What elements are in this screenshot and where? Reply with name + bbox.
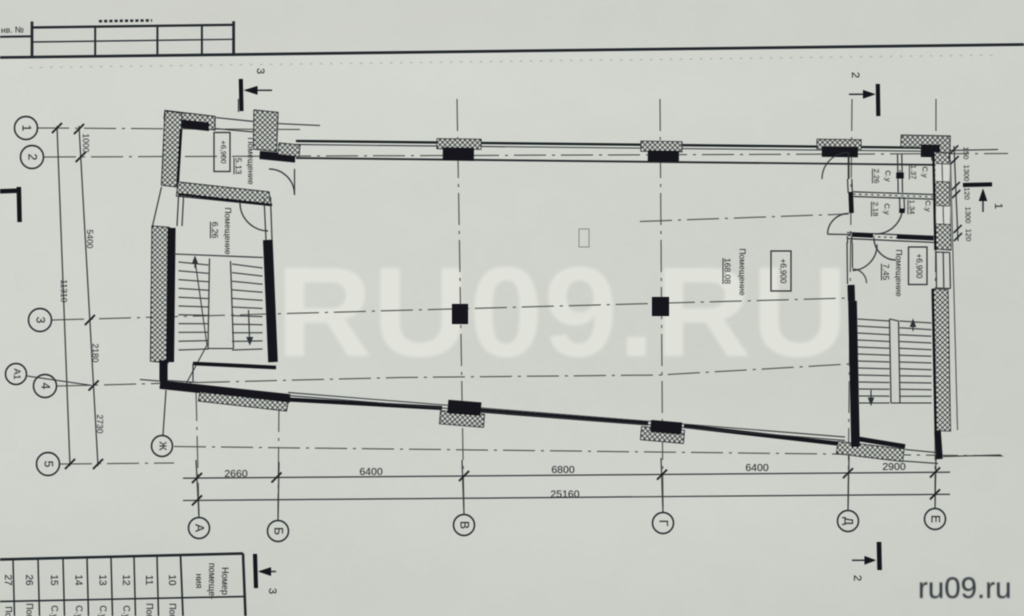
svg-text:нв. №: нв. № bbox=[1, 24, 24, 35]
svg-text:2900: 2900 bbox=[882, 461, 906, 473]
svg-text:А: А bbox=[193, 524, 207, 532]
svg-text:С.у: С.у bbox=[923, 200, 932, 212]
svg-text:С.у: С.у bbox=[121, 605, 131, 616]
svg-text:Пом: Пом bbox=[167, 603, 177, 616]
svg-text:2730: 2730 bbox=[95, 415, 105, 434]
svg-text:Б: Б bbox=[272, 527, 286, 535]
svg-text:10: 10 bbox=[166, 574, 177, 586]
svg-text:+6,900: +6,900 bbox=[779, 259, 788, 284]
svg-text:6.26: 6.26 bbox=[210, 222, 220, 239]
svg-text:1000: 1000 bbox=[81, 134, 91, 153]
svg-text:Ж: Ж bbox=[156, 441, 167, 451]
svg-text:120: 120 bbox=[963, 187, 972, 200]
svg-text:25160: 25160 bbox=[550, 489, 579, 501]
svg-text:5400: 5400 bbox=[85, 230, 95, 249]
svg-text:ния: ния bbox=[194, 574, 204, 589]
svg-text:2: 2 bbox=[851, 575, 863, 581]
svg-text:3: 3 bbox=[266, 588, 278, 594]
svg-text:1300: 1300 bbox=[962, 165, 971, 182]
svg-text:помеще-: помеще- bbox=[207, 563, 217, 599]
svg-text:4: 4 bbox=[39, 383, 53, 390]
svg-text:1: 1 bbox=[992, 203, 1004, 209]
svg-text:В: В bbox=[458, 521, 472, 529]
svg-text:2.26: 2.26 bbox=[872, 169, 881, 184]
svg-text:150: 150 bbox=[961, 147, 970, 160]
svg-text:5: 5 bbox=[42, 461, 56, 468]
svg-text:1.37: 1.37 bbox=[909, 165, 918, 180]
svg-text:1300: 1300 bbox=[963, 207, 972, 224]
svg-text:1: 1 bbox=[20, 125, 34, 132]
svg-text:2: 2 bbox=[26, 154, 40, 161]
svg-text:6400: 6400 bbox=[745, 462, 769, 474]
svg-text:1.34: 1.34 bbox=[907, 200, 916, 215]
svg-text:2660: 2660 bbox=[224, 468, 248, 480]
svg-text:Помещение: Помещение bbox=[894, 249, 904, 296]
svg-text:Пом: Пом bbox=[24, 603, 34, 616]
svg-text:2180: 2180 bbox=[90, 344, 100, 363]
svg-text:7.45: 7.45 bbox=[881, 264, 891, 281]
svg-text:26: 26 bbox=[23, 574, 34, 586]
svg-text:6400: 6400 bbox=[359, 466, 383, 478]
svg-text:12: 12 bbox=[120, 574, 131, 586]
svg-text:120: 120 bbox=[964, 229, 973, 242]
svg-text:С.у: С.у bbox=[74, 605, 84, 616]
svg-text:15: 15 bbox=[48, 574, 59, 586]
svg-text:6800: 6800 bbox=[551, 464, 575, 476]
svg-text:+6,900: +6,900 bbox=[915, 254, 924, 279]
svg-text:168.08: 168.08 bbox=[722, 258, 732, 284]
svg-text:По: По bbox=[3, 606, 13, 616]
svg-text:ru09.ru: ru09.ru bbox=[918, 572, 1011, 605]
svg-text:С.у: С.у bbox=[883, 170, 892, 182]
svg-text:А1: А1 bbox=[12, 368, 22, 379]
svg-text:3: 3 bbox=[254, 68, 266, 74]
svg-text:RU09.RU: RU09.RU bbox=[276, 241, 848, 384]
svg-text:13: 13 bbox=[96, 574, 107, 586]
svg-text:Помещение: Помещение bbox=[246, 137, 256, 184]
svg-text:С.у: С.у bbox=[98, 605, 108, 616]
svg-text:+6,900: +6,900 bbox=[219, 140, 228, 163]
svg-text:11310: 11310 bbox=[59, 279, 69, 302]
svg-text:14: 14 bbox=[72, 574, 83, 586]
svg-text:11: 11 bbox=[143, 575, 154, 586]
svg-text:2.18: 2.18 bbox=[871, 202, 880, 217]
svg-text:Номер: Номер bbox=[220, 567, 230, 595]
svg-text:С.у: С.у bbox=[49, 605, 59, 616]
svg-text:Помещение: Помещение bbox=[223, 207, 233, 254]
svg-text:3: 3 bbox=[34, 317, 48, 324]
svg-text:Г: Г bbox=[657, 520, 671, 527]
svg-text:Помещение: Помещение bbox=[737, 248, 747, 295]
svg-text:2: 2 bbox=[849, 72, 861, 78]
svg-text:Е: Е bbox=[929, 515, 943, 523]
svg-text:27: 27 bbox=[2, 574, 13, 586]
svg-text:С.у: С.у bbox=[920, 166, 929, 178]
svg-text:Д: Д bbox=[842, 517, 856, 525]
svg-text:Пом: Пом bbox=[144, 603, 154, 616]
svg-text:С.у: С.у bbox=[882, 203, 891, 215]
svg-text:5.13: 5.13 bbox=[233, 158, 243, 175]
